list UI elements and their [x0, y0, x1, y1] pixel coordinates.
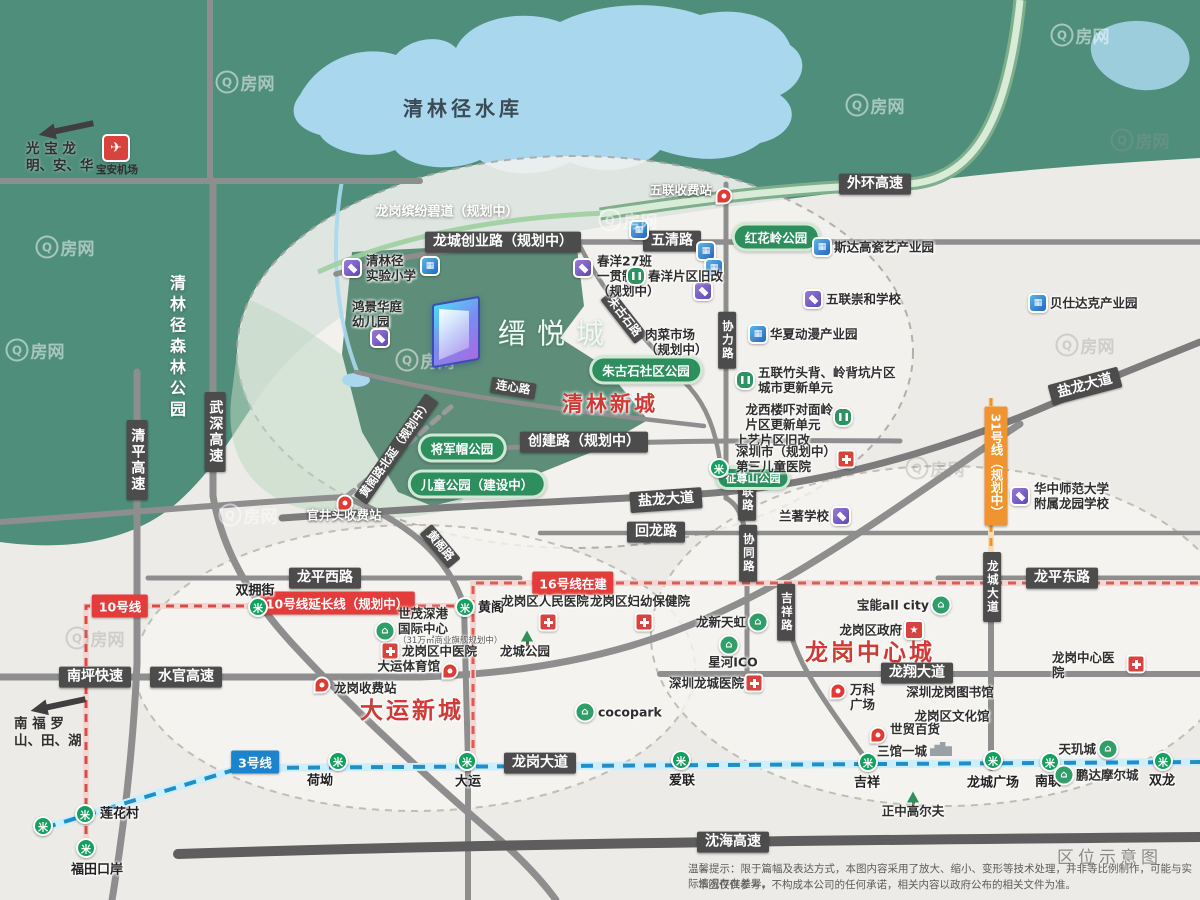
map-canvas: 清林径水库清林径森林公园龙岗缤纷碧道（规划中）清林新城大运新城龙岗中心城外环高速… — [0, 0, 1200, 900]
sch-icon — [342, 258, 362, 278]
metro-station-label: 吉祥 — [854, 772, 880, 791]
poi-label: 深圳市（规划中） 第三儿童医院 — [736, 444, 836, 474]
direction-hint-nw-line2: 明、安、华 — [26, 158, 94, 175]
ren-icon — [735, 370, 755, 390]
ind-icon: ▦ — [812, 237, 832, 257]
metro-station-icon: 米 — [1153, 751, 1173, 771]
pin-icon — [716, 188, 733, 205]
hos-icon — [635, 613, 654, 632]
metro-station-label: 莲花村 — [100, 803, 139, 822]
sch-icon — [693, 281, 713, 301]
poi-label: 肉菜市场 （规划中） — [645, 327, 708, 357]
hos-icon — [745, 674, 764, 693]
area-label: 龙岗缤纷碧道（规划中） — [375, 201, 518, 220]
metro-station-icon: 米 — [248, 597, 268, 617]
poi-label: 五联崇和学校 — [826, 292, 901, 307]
road-label: 创建路（规划中） — [520, 432, 648, 453]
ind-icon: ▦ — [1028, 293, 1048, 313]
park-pill: 将军帽公园 — [418, 434, 507, 463]
poi-label: 春洋片区旧改 — [648, 269, 723, 284]
direction-hint-sw-line2: 山、田、湖 — [14, 733, 82, 750]
sch-icon — [831, 506, 851, 526]
poi-label: 官井头收费站 — [306, 508, 381, 523]
road-label: 协同路 — [739, 525, 757, 582]
poi-label: 世茂深港 国际中心（31万㎡商业旗舰规划中） — [398, 606, 502, 646]
metro-station-label: 双拥街 — [235, 580, 274, 599]
district-name: 大运新城 — [360, 691, 464, 725]
shop-icon: ⌂ — [575, 702, 596, 723]
metro-station-label: 福田口岸 — [71, 859, 123, 878]
metro-line-label: 10号线延长线（规划中） — [259, 592, 415, 615]
road-label: 龙翔大道 — [881, 663, 953, 684]
poi-label: 龙岗中心医院 — [1052, 650, 1126, 680]
ind-icon: ▦ — [748, 324, 768, 344]
poi-label: 五联收费站 — [649, 183, 712, 198]
poi-label: 龙岗区妇幼保健院 — [590, 594, 690, 609]
shop-icon: ⌂ — [1098, 739, 1119, 760]
metro-station-icon: 米 — [457, 751, 477, 771]
poi-label: 正中高尔夫 — [882, 804, 945, 819]
metro-station-icon: 米 — [328, 751, 348, 771]
poi-label: 深圳龙岗图书馆 — [906, 685, 994, 700]
area-label: 清林径森林公园 — [164, 275, 188, 422]
poi-label: 星河ICO — [708, 655, 757, 670]
poi-label: 清林径 实验小学 — [366, 253, 416, 283]
hos-icon — [1127, 655, 1146, 674]
poi-label: 龙岗收费站 — [334, 681, 397, 696]
poi-label: 天玑城 — [1058, 742, 1096, 757]
poi-label: 龙新天虹 — [696, 615, 746, 630]
road-label: 南坪快速 — [59, 667, 131, 688]
poi-label: 大运体育馆 — [377, 659, 440, 674]
metro-line-label: 3号线 — [231, 751, 279, 774]
metro-station-label: 龙城广场 — [967, 772, 1019, 791]
road-label: 吉祥路 — [777, 584, 795, 641]
shop-icon: ⌂ — [931, 595, 952, 616]
road-label: 武深高速 — [205, 392, 226, 472]
poi-label: 贝仕达克产业园 — [1050, 296, 1138, 311]
shop-icon: ⌂ — [375, 621, 396, 642]
sch-icon — [803, 289, 823, 309]
road-label: 龙城大道 — [983, 552, 1001, 622]
sch-icon — [573, 258, 593, 278]
disclaimer-line2: 本图仅供参考，不构成本公司的任何承诺，相关内容以政府公布的相关文件为准。 — [688, 878, 1200, 893]
metro-station-icon: 米 — [671, 750, 691, 770]
direction-hint-nw-line1: 光 宝 龙 — [26, 141, 76, 158]
airport-icon: ✈ — [102, 134, 130, 162]
poi-label: 三馆一城 — [877, 744, 927, 759]
ren-icon — [833, 407, 853, 427]
ren-icon — [626, 266, 646, 286]
hos-icon — [539, 613, 558, 632]
park-pill: 儿童公园（建设中） — [408, 470, 547, 499]
poi-label: 斯达高瓷艺产业园 — [834, 240, 934, 255]
poi-label: 兰著学校 — [779, 509, 829, 524]
road-label: 回龙路 — [627, 522, 685, 543]
airport-label: 宝安机场 — [96, 162, 138, 177]
road-label: 清平高速 — [127, 420, 148, 500]
pin-icon — [442, 663, 459, 680]
project-logo-icon — [432, 296, 480, 368]
sch-icon — [1010, 486, 1030, 506]
district-name: 清林新城 — [562, 388, 658, 418]
ind-icon: ▦ — [420, 256, 440, 276]
metro-station-icon: 米 — [858, 752, 878, 772]
poi-label: 华夏动漫产业园 — [770, 327, 858, 342]
tree-icon — [907, 792, 919, 803]
shop-icon: ⌂ — [719, 635, 740, 656]
gov-icon: ★ — [904, 620, 924, 640]
poi-label: 华中师范大学 附属龙园学校 — [1034, 481, 1109, 511]
road-label: 龙平东路 — [1026, 568, 1098, 589]
pin-icon — [314, 677, 331, 694]
metro-line-label: 10号线 — [92, 595, 148, 618]
metro-station-label: 双龙 — [1149, 770, 1175, 789]
metro-line-label: 31号线（规划中） — [985, 407, 1008, 526]
road-label: 外环高速 — [839, 174, 911, 195]
road-label: 协力路 — [718, 312, 736, 369]
road-label: 龙平西路 — [289, 568, 361, 589]
tree-icon — [521, 631, 533, 642]
metro-station-icon: 米 — [709, 458, 729, 478]
poi-label: 万科 广场 — [850, 682, 875, 712]
road-label: 五清路 — [643, 231, 701, 252]
pin-icon — [830, 683, 847, 700]
metro-station-icon: 米 — [33, 816, 53, 836]
ind-icon: ▦ — [629, 220, 649, 240]
area-label: 清林径水库 — [403, 93, 523, 122]
metro-station-icon: 米 — [75, 804, 95, 824]
hos-icon — [837, 450, 856, 469]
metro-station-icon: 米 — [983, 750, 1003, 770]
poi-label: 鸿景华庭 幼儿园 — [352, 299, 402, 329]
road-label: 水官高速 — [150, 667, 222, 688]
shop-icon: ⌂ — [1054, 765, 1075, 786]
road-label: 龙岗大道 — [504, 753, 576, 774]
shop-icon: ⌂ — [748, 612, 769, 633]
poi-label: 五联竹头背、岭背坑片区 城市更新单元 — [758, 365, 896, 395]
poi-label: 龙岗区人民医院 — [501, 594, 589, 609]
direction-hint-sw-line1: 南 福 罗 — [14, 716, 64, 733]
metro-station-label: 荷坳 — [307, 770, 333, 789]
poi-label: 鹏达摩尔城 — [1076, 768, 1139, 783]
metro-line-label: 16号线在建 — [532, 572, 613, 595]
poi-label: 宝能all city — [857, 598, 929, 613]
sch-icon — [370, 328, 390, 348]
park-pill: 朱古石社区公园 — [589, 356, 703, 385]
park-pill: 红花岭公园 — [732, 223, 821, 252]
poi-label: 龙西楼吓对面岭 片区更新单元 — [745, 402, 833, 432]
metro-station-label: 爱联 — [669, 770, 695, 789]
metro-station-icon: 米 — [76, 838, 96, 858]
road-label: 龙城创业路（规划中） — [425, 232, 581, 253]
poi-label: 深圳龙城医院 — [669, 676, 744, 691]
poi-label: 世贸百货 — [890, 722, 940, 737]
poi-label: 龙岗区政府 — [839, 623, 902, 638]
poi-sub-label: （31万㎡商业旗舰规划中） — [398, 636, 502, 646]
project-logo-name: 缙悦城 — [498, 312, 615, 352]
pin-icon — [870, 727, 887, 744]
metro-station-label: 大运 — [455, 771, 481, 790]
road-label: 沈海高速 — [697, 832, 769, 853]
poi-label: cocopark — [598, 705, 662, 720]
poi-label: 龙城公园 — [500, 644, 550, 659]
